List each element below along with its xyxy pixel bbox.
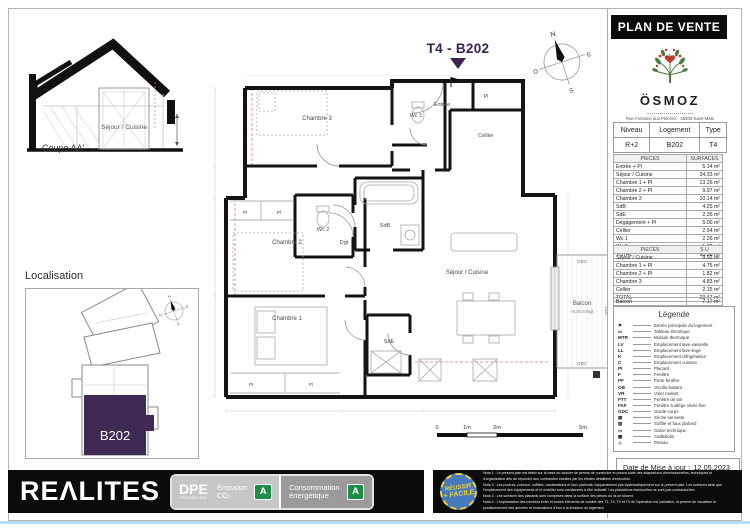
table-row: Cellier2.54 m²	[614, 227, 723, 235]
room-chambre3: Chambre 3	[302, 116, 332, 122]
svg-text:S: S	[177, 322, 181, 327]
legend-label: Garde-corps	[654, 409, 730, 414]
plan-de-vente-title: PLAN DE VENTE	[611, 15, 727, 39]
table-row: Chambre 2 + Pl9.97 m²	[614, 187, 723, 195]
f-symbol: F	[618, 372, 633, 377]
reussir-facile-badge: RÉUSSIR + FACILE	[438, 471, 480, 513]
piece-surface: 4.25 m²	[687, 203, 723, 211]
piece-name: Cellier	[614, 227, 687, 235]
legend-label: Emplacement cuisson	[654, 360, 730, 365]
lv-symbol: LV	[618, 342, 633, 347]
plan-de-vente-sheet: Séjour / Cuisine Coupe AA' T4 - B202 N E…	[0, 0, 750, 528]
svg-text:O: O	[159, 313, 163, 318]
legend-label: Emplacement réfrigérateur	[654, 354, 730, 359]
piece-name: Chambre 1 + Pl	[614, 262, 687, 270]
balcony: GDC GDC GDC Balcon +0.05 m/logt	[551, 255, 609, 378]
legend-label: Porte fenêtre	[654, 378, 730, 383]
room-wc1: Wc 1	[410, 113, 423, 119]
room-pl-ch2b: Pl	[277, 210, 281, 216]
scale-0: 0	[435, 425, 438, 431]
su-table: PIECESS.U Séjour / Cuisine9.92 m² Chambr…	[613, 245, 723, 302]
table-row: Séjour / Cuisine9.92 m²	[614, 254, 723, 262]
coupe-room-label: Séjour / Cuisine	[101, 124, 147, 131]
piece-name: Wc 1	[614, 235, 687, 243]
table-row: Entrée + Pl5.14 m²	[614, 163, 723, 171]
balcon-note: +0.05 m/logt	[570, 309, 594, 314]
dpe-conso-line2: énergétique	[289, 492, 339, 500]
room-wc2: Wc 2	[317, 227, 330, 233]
table-row: Cellier2.15 m²	[614, 286, 723, 294]
room-chambre1: Chambre 1	[272, 316, 302, 322]
info-header-niveau: Niveau	[614, 123, 650, 138]
balcon-row: Balcon7.17 m²	[614, 298, 723, 306]
k-symbol: K	[618, 354, 633, 359]
legend-label: Fenêtre à allège vitrée fixe	[654, 403, 730, 408]
piece-surface: 5.00 m²	[687, 219, 723, 227]
room-balcon: Balcon	[573, 301, 591, 307]
room-sejour: Séjour / Cuisine	[446, 270, 489, 276]
brand-name: ÖSMOZ	[608, 93, 732, 108]
legend-label: Placard	[654, 366, 730, 371]
dpe-emission-grade-badge: A	[254, 484, 272, 500]
ll-symbol: LL	[618, 348, 633, 353]
legend-label: Soffite et faux plafond	[654, 421, 730, 426]
legend-label: Volet roulant	[654, 391, 730, 396]
brand-block: ÖSMOZ Rue Fontaine aux Pèlerins - 35400 …	[608, 45, 732, 121]
piece-name: Cellier	[614, 286, 687, 294]
piece-name: Séjour / Cuisine	[614, 171, 687, 179]
dpe-emission-segment: Émission CO₂ A	[215, 476, 279, 508]
piece-name: Séjour / Cuisine	[614, 254, 687, 262]
unit-banner: T4 - B202	[398, 41, 518, 69]
balcon-label: Balcon	[614, 298, 687, 306]
piece-name: Chambre 2 + Pl	[614, 187, 687, 195]
legal-notes: Nota 1 : Le présent plan est établi sur …	[483, 471, 735, 512]
grating-icon: ▦	[618, 434, 633, 439]
room-pl-ch1a: Pl	[249, 382, 253, 388]
piece-name: Dégagement + Pl	[614, 219, 687, 227]
faf-symbol: FAF	[618, 403, 633, 408]
piece-su: 4.75 m²	[687, 262, 723, 270]
surfaces-header-pieces: PIECES	[614, 155, 687, 163]
scale-bar: 0 1m 2m 5m	[435, 425, 587, 437]
floor-plan-drawing: GDC GDC GDC Balcon +0.05 m/logt Chambre …	[205, 75, 610, 455]
gdc-top-label: GDC	[577, 259, 586, 264]
table-row: Chambre 34.83 m²	[614, 278, 723, 286]
dpe-conso-grade-badge: A	[347, 484, 365, 500]
room-chambre2: Chambre 2	[272, 240, 302, 246]
svg-text:E: E	[186, 304, 190, 309]
column-icon: ⊥	[618, 440, 633, 445]
piece-name: Chambre 3	[614, 195, 687, 203]
table-row: Chambre 1 + Pl13.26 m²	[614, 179, 723, 187]
soffit-hatch-icon: ▨	[618, 421, 633, 426]
piece-surface: 5.14 m²	[687, 163, 723, 171]
legend-label: Caillebotis	[654, 434, 730, 439]
piece-su: 2.15 m²	[687, 286, 723, 294]
vr-symbol: VR	[618, 391, 633, 396]
osmoz-flower-logo-icon	[650, 45, 690, 87]
scale-1m: 1m	[463, 425, 471, 431]
realites-logo: REΛLITES	[20, 476, 160, 507]
legend-label: Sèche serviette	[654, 415, 730, 420]
ftt-symbol: FTT	[618, 397, 633, 402]
info-header-row: Niveau Logement Type	[614, 123, 727, 138]
su-header-pieces: PIECES	[614, 246, 687, 254]
dpe-title: DPE	[179, 483, 208, 496]
compass-n-label: N	[550, 31, 557, 39]
dimension-lines	[213, 75, 568, 413]
piece-name: Chambre 3	[614, 278, 687, 286]
scale-5m: 5m	[579, 425, 587, 431]
room-pl-ch1b: Pl	[309, 382, 313, 388]
footer-notes-bar: RÉUSSIR + FACILE Nota 1 : Le présent pla…	[433, 470, 742, 513]
surfaces-header-surfaces: SURFACES	[687, 155, 723, 163]
dpe-title-segment: DPE PROVISOIRE	[172, 476, 215, 508]
piece-name: SdE	[614, 211, 687, 219]
unit-title: T4 - B202	[398, 41, 518, 56]
brand-decoration	[647, 110, 693, 114]
piece-surface: 2.35 m²	[687, 211, 723, 219]
legend-title: Légende	[618, 310, 730, 319]
piece-name: SdB	[614, 203, 687, 211]
scale-2m: 2m	[493, 425, 501, 431]
legend-label: Module thermique	[654, 335, 730, 340]
piece-name: Chambre 2 + Pl	[614, 270, 687, 278]
su-header-su: S.U	[687, 246, 723, 254]
compass-e-label: E	[586, 52, 592, 59]
legend-label: Oscillo-battant	[654, 385, 730, 390]
sidebar: PLAN DE VENTE	[607, 9, 740, 518]
localisation-unit-highlight	[84, 395, 146, 455]
info-logement: B202	[650, 138, 700, 153]
brand-address: Rue Fontaine aux Pèlerins - 35400 Saint-…	[608, 116, 732, 121]
towel-radiator-icon: ▤	[618, 415, 633, 420]
info-header-logement: Logement	[650, 123, 700, 138]
unit-info-table: Niveau Logement Type R+2 B202 T4	[613, 122, 727, 153]
localisation-map: B202 N E S O	[26, 289, 196, 456]
duct-box-icon: ▭	[618, 428, 633, 433]
localisation-unit-label: B202	[100, 428, 130, 443]
pf-symbol: PF	[618, 378, 633, 383]
info-type: T4	[700, 138, 727, 153]
c-symbol: C	[618, 360, 633, 365]
table-row: SdE2.35 m²	[614, 211, 723, 219]
svg-text:N: N	[168, 294, 172, 299]
coupe-caption: Coupe AA'	[42, 143, 84, 153]
legend-item: ⊥Poteau	[618, 439, 730, 445]
piece-su: 1.82 m²	[687, 270, 723, 278]
nota-3: Nota 3 : Les surfaces des placards sont …	[483, 494, 735, 500]
piece-surface: 9.97 m²	[687, 187, 723, 195]
footer-brand-bar: REΛLITES DPE PROVISOIRE Émission CO₂ A C…	[8, 470, 424, 513]
dpe-subtitle: PROVISOIRE	[180, 496, 208, 500]
room-sde: SdE	[384, 339, 395, 345]
info-niveau: R+2	[614, 138, 650, 153]
legend-label: Emplacement lave-vaisselle	[654, 342, 730, 347]
table-row: Chambre 2 + Pl1.82 m²	[614, 270, 723, 278]
room-cellier: Cellier	[478, 133, 494, 139]
legend-label: Gaine technique	[654, 428, 730, 433]
localisation-box: B202 N E S O	[25, 288, 199, 459]
piece-surface: 10.14 m²	[687, 195, 723, 203]
electrical-panel-icon: ▭	[618, 329, 633, 334]
piece-name: Chambre 1 + Pl	[614, 179, 687, 187]
gdc-symbol: GDC	[618, 409, 633, 414]
nota-4: Nota 4 : L'implantation des meubles évie…	[483, 500, 735, 511]
nota-1: Nota 1 : Le présent plan est établi sur …	[483, 471, 735, 482]
localisation-title: Localisation	[25, 270, 83, 282]
piece-surface: 2.54 m²	[687, 227, 723, 235]
surfaces-table: PIECESSURFACES Entrée + Pl5.14 m² Séjour…	[613, 154, 723, 259]
table-row: Chambre 310.14 m²	[614, 195, 723, 203]
legend-label: Entrée principale du logement	[654, 323, 730, 328]
dpe-emission-line2: CO₂	[217, 492, 247, 500]
piece-surface: 34.33 m²	[687, 171, 723, 179]
table-row: Wc 12.26 m²	[614, 235, 723, 243]
legend-label: Emplacement lave-linge	[654, 348, 730, 353]
legend-label: Fenêtre de toit	[654, 397, 730, 402]
gdc-bottom-label: GDC	[577, 361, 586, 366]
room-dgt: Dgt	[340, 240, 349, 246]
dpe-box: DPE PROVISOIRE Émission CO₂ A Consommati…	[170, 474, 374, 510]
legend-label: Tableau électrique	[654, 329, 730, 334]
table-row: Dégagement + Pl5.00 m²	[614, 219, 723, 227]
piece-surface: 13.26 m²	[687, 179, 723, 187]
room-sdb: SdB	[380, 223, 391, 229]
balcon-table: Balcon7.17 m²	[613, 297, 723, 306]
info-header-type: Type	[700, 123, 727, 138]
legend-label: Fenêtre	[654, 372, 730, 377]
piece-name: Entrée + Pl	[614, 163, 687, 171]
legend-box: Légende ⚑Entrée principale du logement ▭…	[613, 306, 735, 452]
pl-symbol: Pl	[618, 366, 633, 371]
localisation-compass-icon: N E S O	[154, 290, 194, 331]
room-entree: Entrée	[434, 102, 450, 108]
room-pl-entree: Pl	[484, 94, 488, 100]
furniture	[233, 91, 517, 381]
piece-surface: 2.26 m²	[687, 235, 723, 243]
sheet-bottom-edge	[0, 521, 750, 524]
dpe-conso-segment: Consommation énergétique A	[281, 476, 372, 508]
table-row: SdB4.25 m²	[614, 203, 723, 211]
nota-2: Nota 2 : Les poutres, poteaux, soffites,…	[483, 483, 735, 494]
legend-label: Poteau	[654, 440, 730, 445]
table-row: Chambre 1 + Pl4.75 m²	[614, 262, 723, 270]
room-pl-ch2a: Pl	[243, 210, 247, 216]
info-value-row: R+2 B202 T4	[614, 138, 727, 153]
piece-su: 4.83 m²	[687, 278, 723, 286]
entry-flag-icon: ⚑	[618, 323, 633, 328]
table-row: Séjour / Cuisine34.33 m²	[614, 171, 723, 179]
mtr-symbol: MTR	[618, 335, 633, 340]
piece-su: 9.92 m²	[687, 254, 723, 262]
ob-symbol: OB	[618, 385, 633, 390]
balcon-value: 7.17 m²	[687, 298, 723, 306]
unit-marker-triangle-icon	[450, 58, 466, 69]
